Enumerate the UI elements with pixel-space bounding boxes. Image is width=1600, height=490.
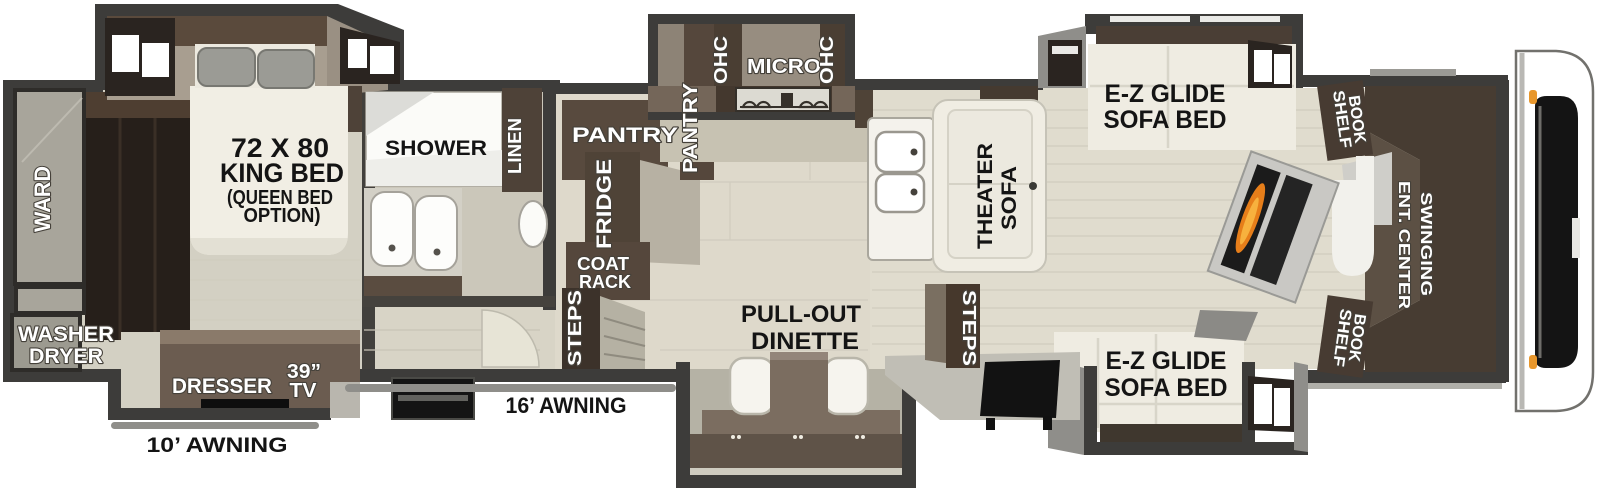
svg-text:ENT. CENTER: ENT. CENTER — [1395, 181, 1412, 310]
svg-text:PULL-OUT: PULL-OUT — [741, 301, 861, 328]
svg-text:RACK: RACK — [579, 272, 631, 292]
svg-text:WASHER: WASHER — [18, 323, 114, 346]
svg-text:SWINGING: SWINGING — [1417, 192, 1434, 296]
svg-text:10’ AWNING: 10’ AWNING — [147, 434, 288, 457]
svg-text:DRYER: DRYER — [29, 345, 103, 368]
svg-text:COAT: COAT — [577, 254, 629, 274]
svg-text:MICRO: MICRO — [747, 56, 821, 78]
svg-text:THEATER: THEATER — [974, 143, 997, 249]
svg-text:OHC: OHC — [817, 36, 837, 84]
svg-text:FRIDGE: FRIDGE — [593, 159, 616, 249]
svg-text:STEPS: STEPS — [959, 290, 979, 366]
svg-text:DRESSER: DRESSER — [172, 375, 272, 398]
svg-text:SHOWER: SHOWER — [385, 137, 487, 160]
svg-text:E-Z GLIDE: E-Z GLIDE — [1106, 347, 1227, 375]
svg-text:LINEN: LINEN — [505, 118, 525, 174]
svg-text:KING BED: KING BED — [220, 158, 344, 188]
svg-text:STEPS: STEPS — [565, 290, 585, 366]
svg-text:SOFA: SOFA — [998, 166, 1021, 230]
svg-text:PANTRY: PANTRY — [680, 82, 702, 173]
svg-text:SOFA BED: SOFA BED — [1105, 374, 1228, 402]
svg-text:TV: TV — [290, 380, 318, 402]
svg-text:OPTION): OPTION) — [244, 205, 321, 227]
svg-text:DINETTE: DINETTE — [751, 328, 859, 355]
svg-text:16’ AWNING: 16’ AWNING — [506, 393, 627, 418]
svg-text:WARD: WARD — [30, 166, 55, 232]
svg-text:PANTRY: PANTRY — [572, 124, 678, 147]
svg-text:E-Z GLIDE: E-Z GLIDE — [1105, 80, 1226, 108]
svg-text:SOFA BED: SOFA BED — [1104, 106, 1227, 134]
svg-text:OHC: OHC — [711, 36, 731, 84]
